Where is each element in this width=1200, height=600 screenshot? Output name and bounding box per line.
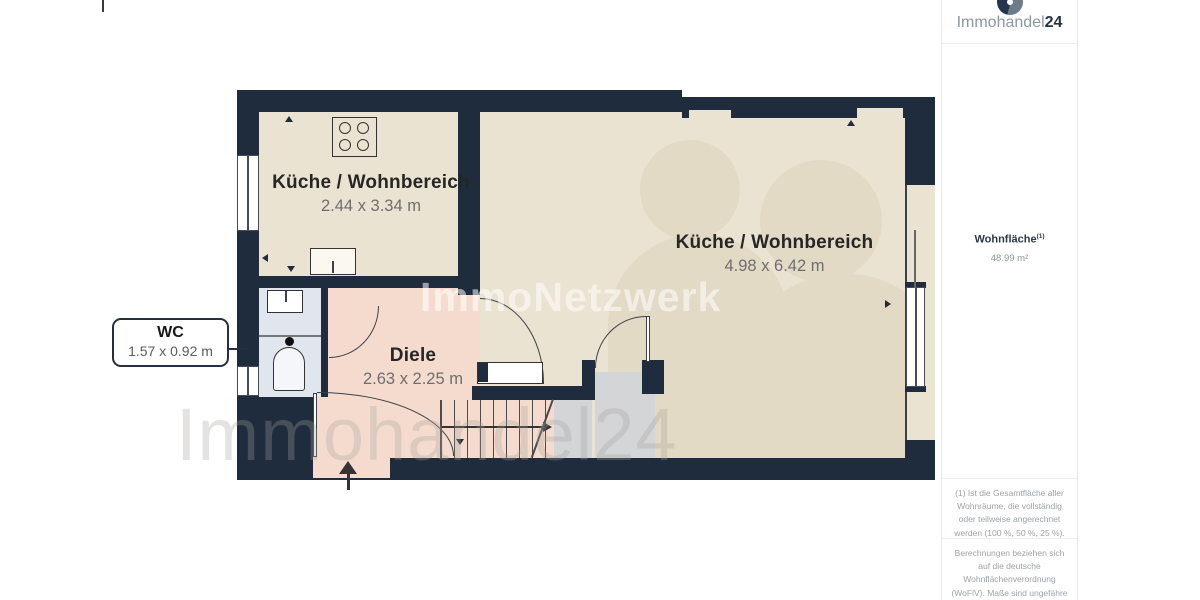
dimension-arrow-icon	[262, 254, 268, 262]
window-glass-line	[247, 156, 249, 230]
stove-burner-icon	[357, 139, 369, 151]
footnote-2: Berechnungen beziehen sich auf die deuts…	[942, 538, 1077, 600]
logo: Immohandel24	[942, 0, 1077, 44]
wc-sink-icon	[267, 290, 303, 313]
living-area-value: 48.99 m²	[942, 253, 1077, 264]
logo-text: Immohandel24	[942, 14, 1077, 32]
watermark-immonetzwerk: ImmoNetzwerk	[420, 274, 721, 321]
room-dimensions: 1.57 x 0.92 m	[114, 343, 227, 359]
dimension-arrow-icon	[885, 300, 891, 308]
stove-burner-icon	[339, 139, 351, 151]
toilet-flush-dot	[285, 337, 294, 346]
logo-text-primary: Immohandel	[957, 14, 1045, 31]
stray-mark	[102, 0, 104, 12]
dimension-arrow-icon	[465, 254, 471, 262]
room-label-diele: Diele 2.63 x 2.25 m	[333, 345, 493, 389]
window-glass-line	[915, 288, 917, 386]
room-name: Küche / Wohnbereich	[265, 172, 477, 194]
living-area-footnote-ref: (1)	[1037, 233, 1045, 240]
room-label-kueche-left: Küche / Wohnbereich 2.44 x 3.34 m	[265, 172, 477, 216]
stove-burner-icon	[339, 122, 351, 134]
footnote-1: (1) Ist die Gesamtfläche aller Wohnräume…	[942, 478, 1077, 538]
room-name: WC	[114, 324, 227, 342]
living-area-summary: Wohnfläche(1) 48.99 m²	[942, 233, 1077, 264]
dimension-arrow-icon	[285, 116, 293, 122]
door-leaf-right	[914, 230, 916, 288]
room-name: Küche / Wohnbereich	[667, 232, 882, 254]
window-glass-line	[247, 367, 249, 395]
living-area-label-text: Wohnfläche	[974, 234, 1036, 246]
wc-callout-connector	[229, 348, 249, 350]
dimension-arrow-icon	[847, 120, 855, 126]
logo-dot	[1007, 0, 1013, 5]
logo-icon	[997, 0, 1023, 15]
sink-tap-line	[285, 291, 287, 302]
door-leaf-storage	[646, 316, 650, 362]
wall-opening	[689, 110, 731, 118]
wall-top-left	[237, 90, 682, 112]
room-dimensions: 2.44 x 3.34 m	[265, 197, 477, 216]
room-label-kueche-right: Küche / Wohnbereich 4.98 x 6.42 m	[667, 232, 882, 276]
stove-icon	[332, 117, 377, 157]
wc-callout: WC 1.57 x 0.92 m	[112, 318, 229, 367]
toilet-icon	[273, 347, 305, 391]
page: Küche / Wohnbereich 2.44 x 3.34 m Küche …	[0, 0, 1200, 600]
wall-storage-stub-left	[582, 360, 595, 394]
wall-right-lower	[905, 440, 935, 480]
sidebar: Immohandel24 Wohnfläche(1) 48.99 m² (1) …	[941, 0, 1078, 600]
kitchen-sink-icon	[310, 248, 356, 275]
stove-burner-icon	[357, 122, 369, 134]
wall-opening	[857, 108, 903, 118]
wall-right-upper	[905, 97, 935, 185]
watermark-immohandel: Immohandel24	[176, 392, 678, 477]
room-dimensions: 2.63 x 2.25 m	[333, 370, 493, 389]
dimension-arrow-icon	[287, 266, 295, 272]
living-area-label: Wohnfläche(1)	[942, 233, 1077, 246]
watermark-figure-head	[640, 140, 740, 240]
logo-text-suffix: 24	[1045, 14, 1063, 31]
wall-wc-separator	[321, 288, 328, 397]
window-right	[906, 287, 925, 387]
room-name: Diele	[333, 345, 493, 367]
window	[237, 155, 259, 231]
sink-tap-line	[332, 261, 334, 273]
